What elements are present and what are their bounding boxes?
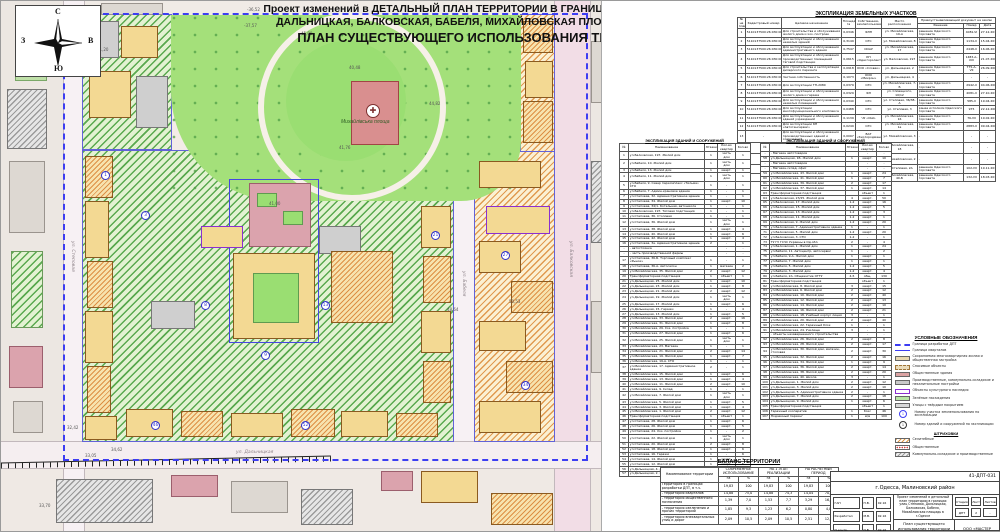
street-label-dalnitskaya: ул. Дальницкая <box>236 450 273 455</box>
building-footprint <box>7 89 47 149</box>
building-footprint <box>591 161 601 243</box>
district-label: г.Одесса, Малиновский район <box>831 482 999 495</box>
table-row: 85110137500:26:030:0027Для эксплуатации … <box>738 90 996 98</box>
building-number-badge: 34 <box>521 381 530 390</box>
legend-item: Производственные, коммунально-складские … <box>895 379 997 387</box>
elevation-mark: 33,70 <box>39 503 50 508</box>
table-row: 37ул.Михайловская, 17. Административное … <box>620 364 751 372</box>
title-line-3: ПЛАН СУЩЕСТВУЮЩЕГО ИСПОЛЬЗОВАНИЯ ТЕРРИТО… <box>226 30 601 45</box>
paved-streets-swatch <box>895 403 910 408</box>
dpt-boundary-swatch <box>895 344 910 346</box>
title-block-mid: Проект изменений в детальный план террит… <box>893 495 999 532</box>
street-label-stepovaya: ул. Степовая <box>70 241 75 272</box>
legend-item: Сносимые объекты <box>895 365 997 370</box>
table-row: Н.контр.Н.В.02.16 <box>833 524 891 532</box>
table-row: 5ул.Бабеля, 9. Сквер паркомплекс «Тильма… <box>620 181 751 189</box>
buildings-right-header: №Наименование ЭтажностьКол-во квартирКол… <box>761 144 892 152</box>
table-row: 55110137500:26:030:0018Для строительства… <box>738 65 996 73</box>
table-row: 125110137500:26:030:0039Для эксплуатации… <box>738 122 996 130</box>
balance-header: Наименование территории СОВРЕМЕННОЕ ИСПО… <box>661 468 839 483</box>
title-block: 41-ДПТ-031 г.Одесса, Малиновский район Г… <box>830 471 1000 531</box>
public-buildings-swatch <box>895 372 910 377</box>
legend-item: Зелёные насаждения <box>895 396 997 401</box>
building-number-badge: 3 <box>141 211 150 220</box>
table-row: ГАПН.В.02.16 <box>833 497 891 509</box>
legend: УСЛОВНЫЕ ОБОЗНАЧЕНИЯ Граница разработки … <box>895 335 997 459</box>
parcels-table-header: № на плане Кадастровый номер Целевое наз… <box>738 18 996 29</box>
table-row: 115110137500:26:030:0036Для эксплуатации… <box>738 114 996 122</box>
table-row: 1ул.Балковская, 197. Жилой дом1часть дом… <box>620 152 751 160</box>
buildings-left-rows: 1ул.Балковская, 197. Жилой дом1часть дом… <box>620 152 751 477</box>
compass-east: В <box>88 36 93 45</box>
tables-panel: ЭКСПЛИКАЦИЯ ЗЕМЕЛЬНЫХ УЧАСТКОВ № на план… <box>601 1 1000 531</box>
elevation-mark: 41,00 <box>269 201 280 206</box>
industrial-hatch-swatch <box>895 452 910 457</box>
buildings-left-header: №Наименование ЭтажностьКол-во квартирКол… <box>620 144 751 152</box>
building-number-badge: 13 <box>321 301 330 310</box>
title-line-2: ДАЛЬНИЦКАЯ, БАЛКОВСКАЯ, БАБЕЛЯ, МИХАЙЛОВ… <box>226 16 601 29</box>
heritage-swatch <box>895 389 910 394</box>
table-row: 24ул.Дальницкая, 19. Жилой дом1часть дом… <box>620 294 751 302</box>
balance-table-block: БАЛАНС ТЕРРИТОРИИ Наименование территори… <box>660 459 838 525</box>
table-row: - территория внеквартальных улиц и дорог… <box>661 515 839 524</box>
building-number-badge: 8 <box>201 301 210 310</box>
elevation-mark: 34,62 <box>111 447 122 452</box>
table-row: РазработалМ.В.02.16 <box>833 511 891 523</box>
buildings-table-right: №Наименование ЭтажностьКол-во квартирКол… <box>760 143 892 420</box>
project-name: Проект изменений в детальный план террит… <box>894 495 952 519</box>
table-row: 50ул.Степовая, 22. Жилой дом1часть дом1 <box>620 434 751 442</box>
sheets-value: - <box>983 508 997 517</box>
residential-swatch <box>895 356 910 361</box>
industrial-swatch <box>895 380 910 385</box>
legend-item: Объекты культурного наследия <box>895 389 997 394</box>
building-footprint <box>381 471 413 491</box>
building-footprint <box>171 475 218 497</box>
elevation-mark: 44,82 <box>429 101 440 106</box>
building-footprint <box>13 401 43 433</box>
building-number-badge: 1 <box>101 171 110 180</box>
demolished-swatch <box>895 365 910 370</box>
parcel-number-badge-swatch: 1 <box>899 410 907 418</box>
legend-item: 1Номер зданий и сооружений по экспликаци… <box>895 421 997 429</box>
table-row: 107Подземный паркинг1м/м100 <box>761 414 892 419</box>
legend-item: Граница кварталов <box>895 349 997 353</box>
buildings-table-left: №Наименование ЭтажностьКол-во квартирКол… <box>619 143 751 477</box>
building-number-badge: 52 <box>301 421 310 430</box>
legend-item: Сохраняемая многоквартирная жилая и обще… <box>895 355 997 363</box>
balance-table: Наименование территории СОВРЕМЕННОЕ ИСПО… <box>660 467 839 525</box>
table-row: - территория общественного назначения1,3… <box>661 497 839 506</box>
signatures-table: ГАПН.В.02.16РазработалМ.В.02.16Н.контр.Н… <box>831 495 893 532</box>
building-footprint <box>421 471 478 503</box>
document-code: 41-ДПТ-031 <box>831 472 999 482</box>
elevation-mark: 41,76 <box>339 145 350 150</box>
table-row: 25110137500:26:030:0007Для эксплуатации … <box>738 37 996 45</box>
table-row: 32ул.Михайловская, 25. Жилой дом1часть д… <box>620 336 751 344</box>
buildings-table-left-block: ЭКСПЛИКАЦИЯ ЗДАНИЙ И СООРУЖЕНИЙ №Наимено… <box>619 139 750 477</box>
signatures-rows: ГАПН.В.02.16РазработалМ.В.02.16Н.контр.Н… <box>833 497 891 532</box>
sheet-value: 2 <box>971 508 981 517</box>
legend-hatch-title: ШТРИХОВКИ <box>895 432 997 436</box>
legend-item: Общественные здания <box>895 372 997 377</box>
table-row: 4ул.Бабеля, 11. Жилой дом1часть дом1 <box>620 173 751 181</box>
elevation-mark: 40,48 <box>349 65 360 70</box>
building-number-badge: 9 <box>261 351 270 360</box>
building-number-badge: 46 <box>151 421 160 430</box>
table-row: 2ул.Бабеля, 10. Жилой дом1часть дом1 <box>620 160 751 168</box>
buildings-table-right-block: ЭКСПЛИКАЦИЯ ЗДАНИЙ И СООРУЖЕНИЙ №Наимено… <box>760 139 891 420</box>
building-footprint <box>231 481 288 513</box>
compass-west: З <box>21 36 25 45</box>
balance-rows: Территория в границах разработки ДПТ, в … <box>661 482 839 524</box>
drawing-name: План существующего использования террито… <box>894 520 954 532</box>
stage-table: Стадия Лист Листов ДПТ 2 - <box>952 495 999 519</box>
compass-north: С <box>55 7 61 16</box>
elevation-mark: 50,53 <box>509 299 520 304</box>
buildings-right-rows: -- Магазин автотоваров--58ул.Дальницкая,… <box>761 152 892 419</box>
table-row: 105110137500:26:030:0033Для эксплуатации… <box>738 106 996 114</box>
table-row: 45110137500:26:030:0015Для эксплуатации … <box>738 54 996 65</box>
title-line-1: Проект изменений в ДЕТАЛЬНЫЙ ПЛАН ТЕРРИТ… <box>226 3 601 16</box>
table-row: 35110137500:26:030:0012Для эксплуатации … <box>738 45 996 53</box>
legend-title: УСЛОВНЫЕ ОБОЗНАЧЕНИЯ <box>895 335 997 340</box>
legend-item: Коммунально-складские и производственные <box>895 452 997 457</box>
building-number-badge: 21 <box>431 231 440 240</box>
table-row: 42ул.Михайловская, 7. Жилой дом1часть до… <box>620 392 751 400</box>
stage-value: ДПТ <box>955 508 969 517</box>
elevation-mark: 33,05 <box>85 453 96 458</box>
territory-map: ✚ <box>1 1 601 531</box>
project-row: Проект изменений в детальный план террит… <box>894 495 999 520</box>
building-footprint <box>9 161 45 233</box>
table-row: - территория озеленения и прочих террито… <box>661 506 839 515</box>
street-label-babelya: ул. Бабеля <box>461 271 466 296</box>
residential-hatch-swatch <box>895 438 910 443</box>
elevation-mark: 48,64 <box>447 307 458 312</box>
building-number-badge: 27 <box>501 251 510 260</box>
building-footprint <box>301 489 353 525</box>
table-row: 75110137500:26:030:0024Для эксплуатации … <box>738 81 996 89</box>
title-scale: М 1:1000 <box>226 46 601 60</box>
building-footprint <box>56 479 153 523</box>
table-row: 12ул.Степовая, 36. Жилой дом1часть дом1 <box>620 219 751 227</box>
table-row: 17ул.Степовая, 36-Б. Торговый комплекс «… <box>620 256 751 264</box>
sheet-title: Проект изменений в ДЕТАЛЬНЫЙ ПЛАН ТЕРРИТ… <box>226 3 601 60</box>
legend-item: Граница разработки ДПТ <box>895 343 997 347</box>
greenery-swatch <box>895 396 910 401</box>
quarter-boundary-swatch <box>895 350 910 351</box>
plan-sheet: ✚ <box>0 0 1000 532</box>
organization-name: ООО «МАСТЕР ПРОЕКТ» <box>954 520 999 532</box>
table-row: - территория кварталов14,8875,014,8874,3… <box>661 491 839 496</box>
table-row: 15110137500:26:030:0004Для строительства… <box>738 29 996 37</box>
green-area <box>11 251 43 328</box>
legend-item: Селитебные <box>895 438 997 443</box>
compass-rose: С В Ю З <box>15 5 101 77</box>
legend-item: 1Номер участка землепользования по экспл… <box>895 410 997 418</box>
elevation-mark: 32,42 <box>67 425 78 430</box>
title-block-body: ГАПН.В.02.16РазработалМ.В.02.16Н.контр.Н… <box>831 495 999 532</box>
legend-item: Улицы с твёрдым покрытием <box>895 403 997 408</box>
table-row: Территория в границах разработки ДПТ, в … <box>661 482 839 491</box>
public-hatch-swatch <box>895 445 910 450</box>
table-row: 95110137500:26:030:0030Для эксплуатации … <box>738 98 996 106</box>
drawing-row: План существующего использования террито… <box>894 520 999 532</box>
table-row: 65110137500:26:030:0021Частная собственн… <box>738 73 996 81</box>
building-footprint <box>9 346 43 388</box>
building-footprint <box>591 301 601 373</box>
dpt-boundary <box>63 13 588 461</box>
building-number-badge-swatch: 1 <box>899 421 907 429</box>
balance-title: БАЛАНС ТЕРРИТОРИИ <box>660 459 838 465</box>
legend-item: Общественные <box>895 445 997 450</box>
table-row: 94ул.Михайловская, 30. Жилой дом, магази… <box>761 347 892 355</box>
compass-south: Ю <box>54 64 63 73</box>
square-label: Михайлівська площа <box>341 119 390 125</box>
building-footprint <box>491 493 553 525</box>
street-label-balkovskaya: ул. Балковская <box>568 241 573 277</box>
